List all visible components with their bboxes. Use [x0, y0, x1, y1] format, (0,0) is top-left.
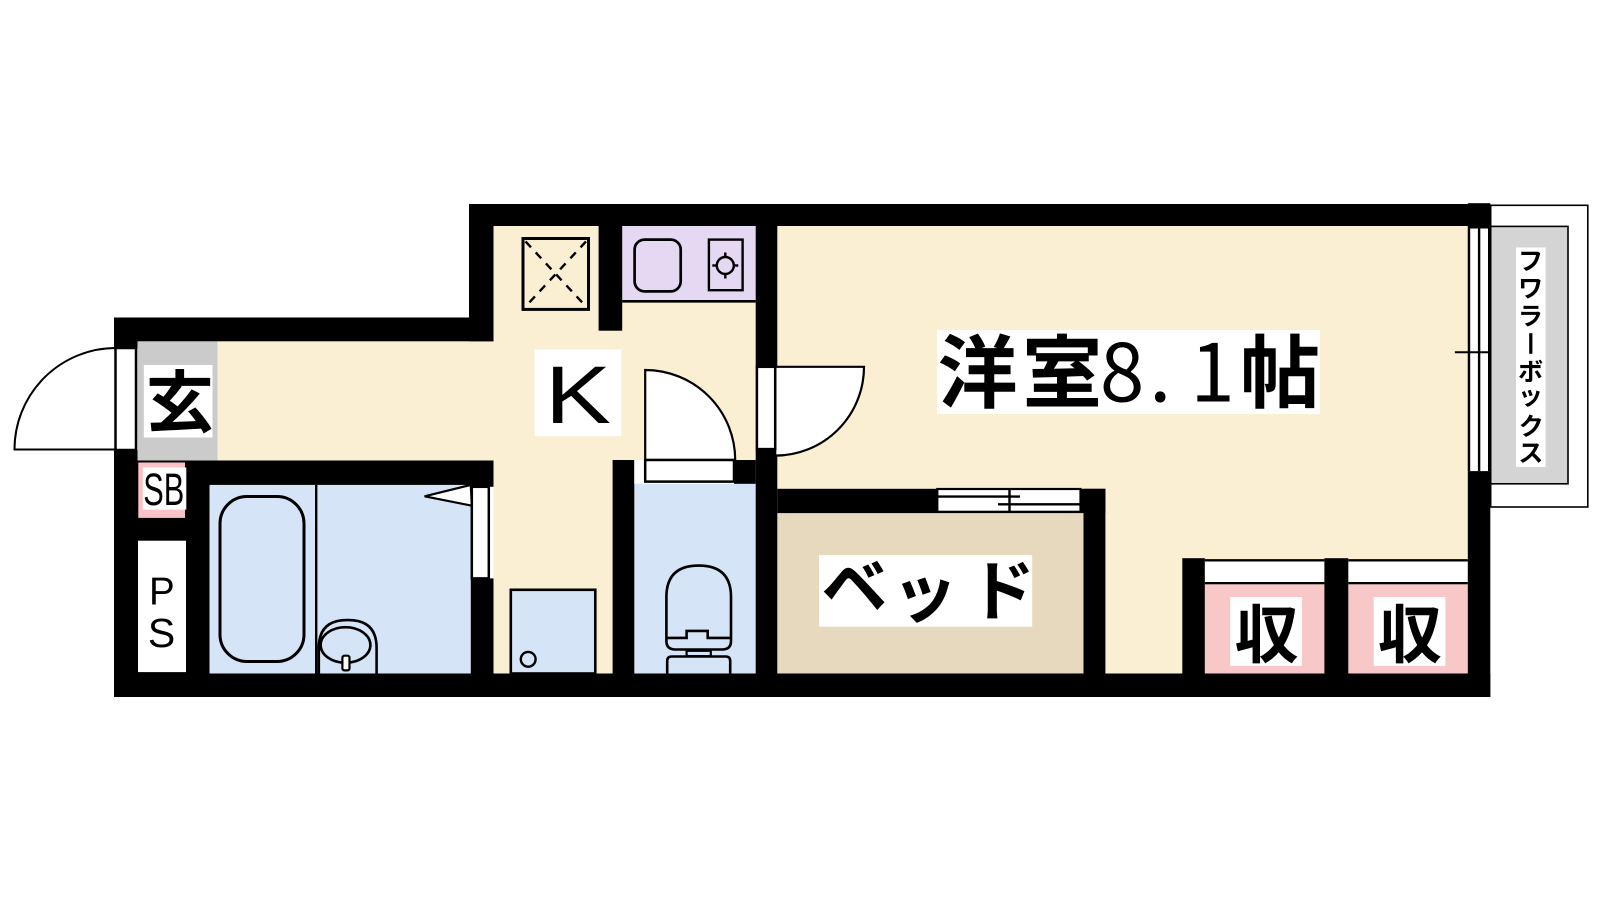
svg-text:K: K [545, 350, 611, 441]
svg-text:S: S [148, 610, 175, 656]
svg-text:SB: SB [143, 464, 184, 515]
svg-text:P: P [149, 571, 175, 614]
